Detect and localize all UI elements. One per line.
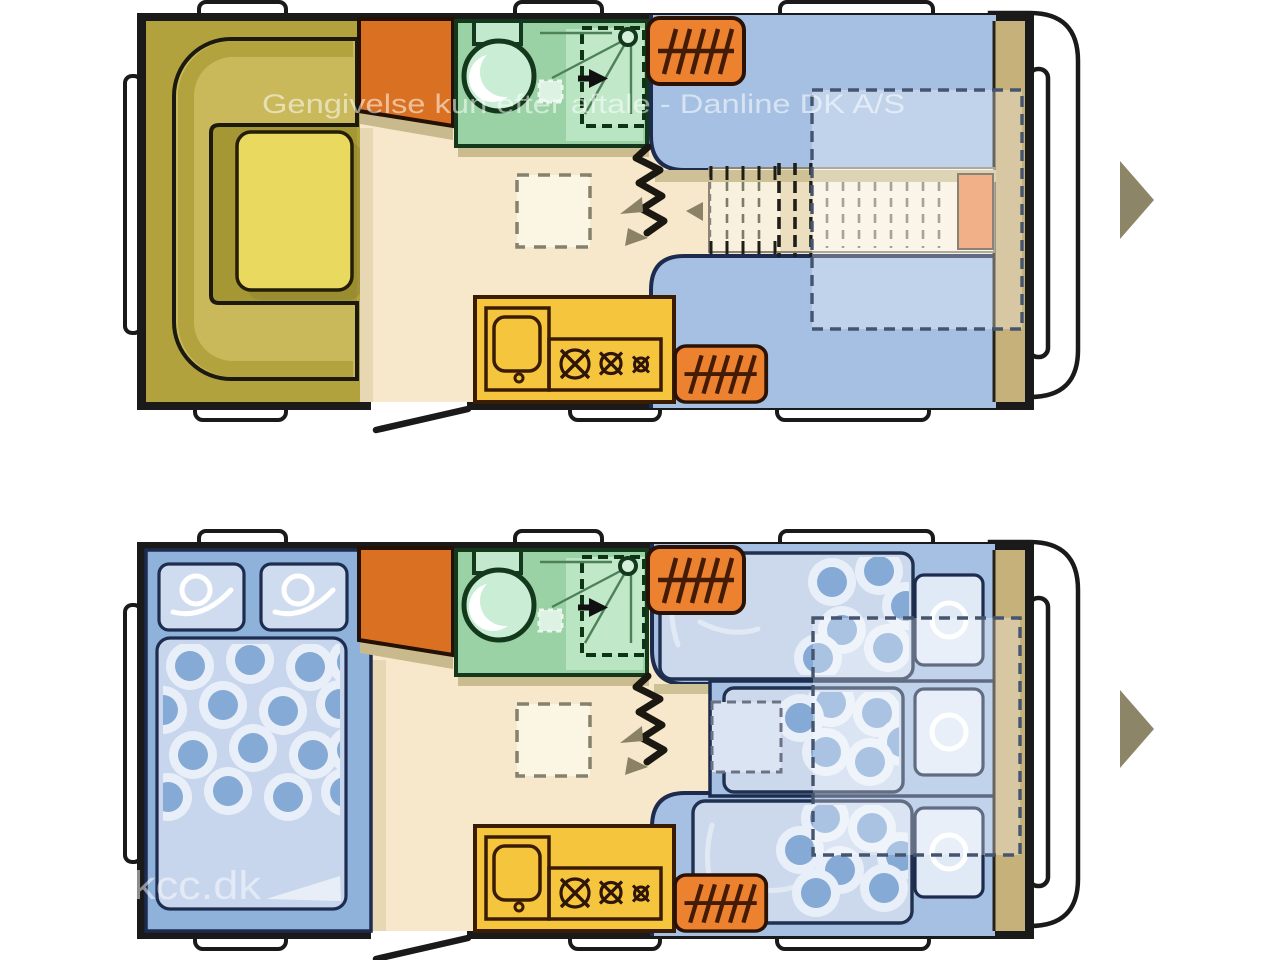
svg-text:Gengivelse kun efter aftale -: Gengivelse kun efter aftale - Danline DK… (262, 89, 905, 119)
svg-text:kcc.dk: kcc.dk (133, 864, 262, 908)
